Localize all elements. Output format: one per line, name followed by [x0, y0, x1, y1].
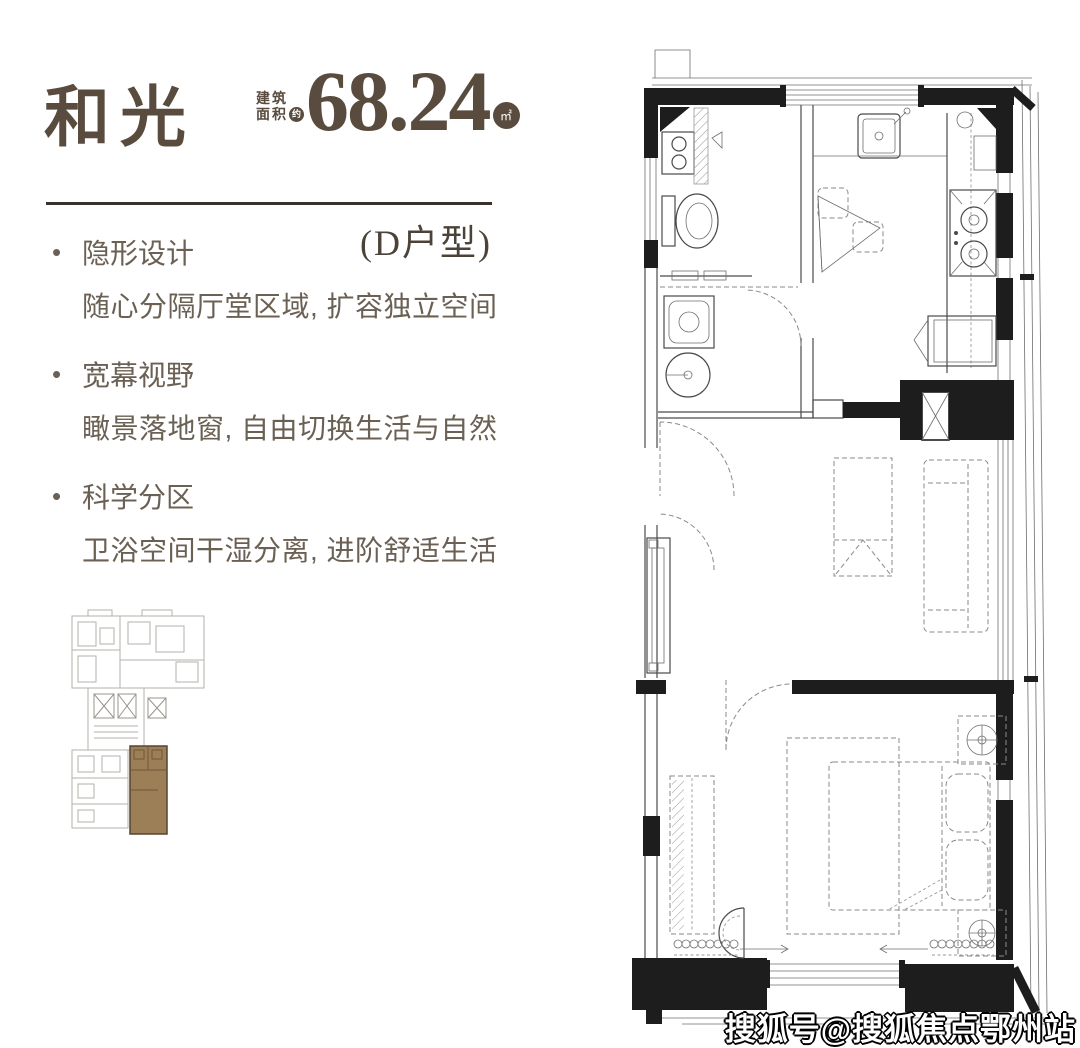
bedroom-door [726, 680, 792, 750]
feature-list: • 隐形设计 随心分隔厅堂区域, 扩容独立空间 • 宽幕视野 瞰景落地窗, 自由… [52, 232, 522, 598]
toilet-icon [662, 194, 718, 248]
sofa-icon [924, 460, 988, 632]
approx-badge: 约 [289, 107, 304, 122]
area-value: 68.24 [306, 66, 490, 137]
chair-icon [719, 908, 744, 958]
area-label: 建筑 面积 约 [256, 90, 304, 122]
interior-walls [636, 105, 1014, 694]
bullet-dot-icon: • [52, 359, 82, 390]
keyplan-highlighted-unit-d [130, 746, 167, 834]
area-label-bottom: 面积 [256, 106, 288, 122]
bathroom [660, 107, 801, 397]
feature-title: 科学分区 [82, 476, 194, 516]
area-block: 建筑 面积 约 68.24 ㎡ [256, 66, 520, 137]
rug [787, 738, 899, 934]
area-label-top: 建筑 [256, 90, 304, 106]
wardrobe-icon [670, 776, 714, 934]
floorplan-drawing [622, 28, 1080, 1030]
bedroom [670, 680, 1006, 958]
bathroom-door-arc [745, 290, 801, 346]
kitchen [813, 108, 996, 373]
washing-machine-icon [664, 296, 714, 348]
hall-closet-icon [647, 538, 670, 673]
living-room [834, 458, 988, 632]
feature-title: 宽幕视野 [82, 354, 194, 394]
page-title: 和光 [44, 64, 196, 160]
folding-bed-icon [834, 458, 892, 576]
area-unit-badge: ㎡ [493, 102, 520, 129]
feature-item: • 科学分区 卫浴空间干湿分离, 进阶舒适生活 [52, 476, 522, 569]
lower-cabinet-icon [914, 316, 996, 366]
feature-item: • 宽幕视野 瞰景落地窗, 自由切换生活与自然 [52, 354, 522, 447]
feature-desc: 卫浴空间干湿分离, 进阶舒适生活 [52, 529, 522, 569]
vanity-icon [662, 132, 694, 174]
bullet-dot-icon: • [52, 237, 82, 268]
kitchen-sink-icon [858, 108, 910, 158]
curtain-icon-left [674, 940, 788, 955]
page: 和光 建筑 面积 约 68.24 ㎡ (D户型) • 隐形设计 随心分隔厅堂区域… [0, 0, 1080, 1048]
corner-shelf-icon [660, 107, 690, 132]
bullet-dot-icon: • [52, 481, 82, 512]
dining-desk [818, 188, 883, 272]
exterior-walls [632, 85, 1036, 1024]
watermark: 搜狐号@搜狐焦点鄂州站 [725, 1004, 1076, 1048]
feature-desc: 瞰景落地窗, 自由切换生活与自然 [52, 407, 522, 447]
gas-stove-icon [950, 190, 996, 276]
divider-rule [46, 202, 492, 205]
curtain-icon-right [880, 940, 994, 955]
feature-item: • 隐形设计 随心分隔厅堂区域, 扩容独立空间 [52, 232, 522, 325]
laundry-sink-icon [666, 353, 710, 397]
feature-title: 隐形设计 [82, 232, 194, 272]
keyplan-building-diagram [58, 598, 223, 843]
feature-desc: 随心分隔厅堂区域, 扩容独立空间 [52, 285, 522, 325]
double-bed-icon [829, 762, 990, 910]
